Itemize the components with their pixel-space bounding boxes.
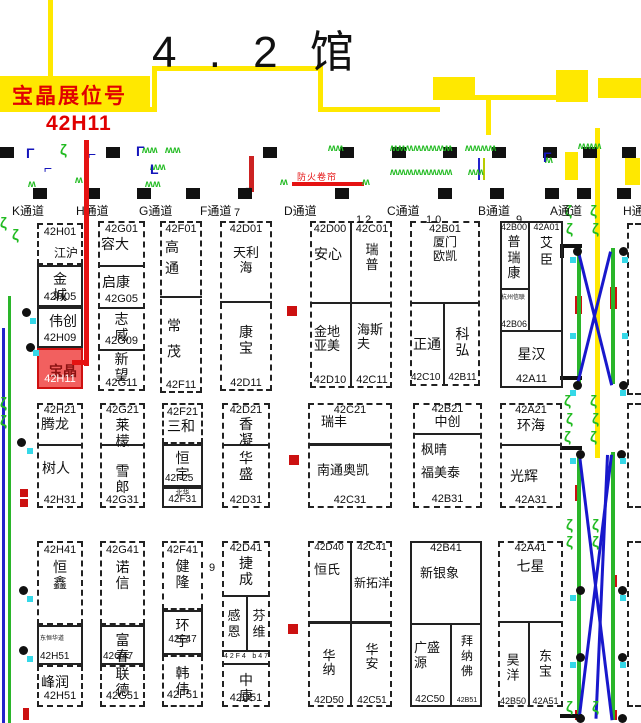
plant-icon: ʍʍ bbox=[468, 168, 484, 178]
plant-icon: ʍʍʍʍʍʍʍʍ bbox=[390, 144, 452, 154]
aisle-label-H: H通道 bbox=[76, 202, 109, 219]
booth-number: 42A11 bbox=[516, 373, 547, 386]
plant-icon: ʍ bbox=[28, 180, 36, 190]
booth-number: 42B11 bbox=[448, 372, 476, 384]
plant-icon: ζ bbox=[590, 430, 597, 445]
booth-name: 华纳 bbox=[319, 649, 340, 679]
booth-name: 东 宝 bbox=[539, 648, 552, 679]
hall-outline bbox=[625, 158, 640, 185]
door-swing-icon: Γ bbox=[26, 146, 34, 160]
booth-42D40: 42D40恒氏 bbox=[308, 541, 350, 621]
booth-number: 42F25 bbox=[165, 473, 193, 485]
utility-square-icon bbox=[33, 350, 39, 356]
door-swing-icon: Γ bbox=[543, 150, 551, 164]
booth-42D50: 华纳42D50 bbox=[308, 624, 350, 707]
booth-name: 芬 维 bbox=[252, 607, 265, 640]
booth-42D11: 康宝42D11 bbox=[220, 301, 272, 391]
utility-square-icon bbox=[27, 596, 33, 602]
booth-number: 42G47 bbox=[103, 651, 133, 663]
marker bbox=[23, 708, 29, 720]
booth-42H01: 42H01江沪 bbox=[37, 223, 83, 265]
booth-name: 江沪 bbox=[54, 247, 78, 261]
hall-outline bbox=[48, 0, 53, 78]
booth-name: 三和 bbox=[167, 418, 195, 434]
marker bbox=[20, 489, 28, 497]
booth-42H21: 42H21腾龙 bbox=[37, 403, 83, 444]
booth-42F41: 42F41健隆 bbox=[162, 541, 203, 610]
booth-number: 42D50 bbox=[314, 695, 343, 707]
booth-number: 42F47 bbox=[168, 634, 196, 646]
booth-number: 42A51 bbox=[532, 696, 558, 706]
column-dot-icon bbox=[573, 381, 582, 390]
booth-number: 42A21 bbox=[515, 404, 547, 417]
booth-name: 星汉 bbox=[518, 346, 546, 362]
marker bbox=[289, 455, 299, 465]
booth-number: 42D21 bbox=[230, 404, 262, 417]
plant-icon: ζ bbox=[590, 394, 597, 409]
pillar-icon bbox=[186, 188, 200, 199]
booth-42C50: 广盛 源42C50 bbox=[410, 625, 450, 707]
booth-name: 枫晴 bbox=[421, 443, 447, 458]
plant-icon: ζ bbox=[592, 700, 599, 715]
booth-42D41: 42D41捷成 bbox=[222, 541, 270, 595]
plant-icon: ζ bbox=[592, 222, 599, 237]
booth-42F01: 42F01高 通 bbox=[160, 221, 202, 296]
partial-booth bbox=[627, 541, 641, 707]
hall-outline bbox=[433, 77, 475, 100]
booth-42H41: 42H41恒鑫 bbox=[37, 541, 83, 625]
booth-number: 42G01 bbox=[105, 223, 138, 236]
utility-square-icon bbox=[30, 318, 36, 324]
booth-name: 捷成 bbox=[234, 555, 258, 587]
booth-name: 昊 洋 bbox=[506, 652, 519, 683]
booth-42B31: 枫晴福美泰42B31 bbox=[413, 435, 482, 508]
column-dot-icon bbox=[573, 247, 582, 256]
column-dot-icon bbox=[619, 381, 628, 390]
booth-name: 伟创 bbox=[49, 313, 77, 329]
booth-name: 艾 臣 bbox=[540, 235, 553, 269]
booth-name: 福美泰 bbox=[421, 466, 460, 481]
booth-name: 新银象 bbox=[420, 567, 459, 582]
booth-number: 42C50 bbox=[415, 694, 444, 706]
booth-42D31: 华盛42D31 bbox=[222, 444, 270, 508]
plant-icon: ζ bbox=[566, 700, 573, 715]
booth-name: 华安 bbox=[362, 643, 382, 673]
pillar-icon bbox=[545, 188, 559, 199]
plant-icon: ζ bbox=[566, 518, 573, 533]
booth-tiny-42F: 4 2 F 4b 4 7 bbox=[222, 650, 270, 663]
booth-number: 42D31 bbox=[230, 494, 262, 507]
utility-square-icon bbox=[570, 257, 576, 263]
booth-name: 普 瑞 康 bbox=[507, 234, 520, 281]
plant-icon: ζ bbox=[564, 394, 571, 409]
pillar-icon bbox=[617, 188, 631, 199]
utility-square-icon bbox=[620, 390, 626, 396]
door-swing-icon: Γ bbox=[136, 144, 144, 158]
booth-42B01: 42B01厦门欧凯 bbox=[410, 221, 480, 302]
hall-outline bbox=[556, 70, 588, 102]
banner-booth-number: 42H11 bbox=[46, 112, 112, 136]
booth-number: 42C41 bbox=[357, 542, 386, 554]
plant-icon: ʍ bbox=[280, 178, 288, 188]
column-dot-icon bbox=[17, 438, 26, 447]
booth-name: 高 通 bbox=[165, 237, 179, 279]
aisle-number: 9 bbox=[516, 214, 522, 226]
booth-42G31: 雪郎42G31 bbox=[100, 444, 145, 508]
booth-number: 42D10 bbox=[314, 374, 346, 387]
utility-square-icon bbox=[620, 595, 626, 601]
booth-number: 42H21 bbox=[44, 404, 76, 417]
booth-42D51: 中康42D51 bbox=[222, 663, 270, 707]
booth-42F51: 韩伟42F51 bbox=[162, 655, 203, 707]
plant-icon: ζ bbox=[592, 518, 599, 533]
plant-icon: ζ bbox=[0, 414, 7, 429]
booth-name: 广盛 源 bbox=[414, 641, 440, 671]
booth-number: 42F11 bbox=[166, 379, 196, 392]
booth-number: 42B50 bbox=[500, 696, 526, 706]
pillar-icon bbox=[622, 147, 636, 158]
marker bbox=[288, 624, 298, 634]
door-swing-icon: L bbox=[150, 162, 159, 176]
column-dot-icon bbox=[576, 586, 585, 595]
booth-number: 42G41 bbox=[106, 544, 139, 557]
booth-42H51: 峰润42H51 bbox=[37, 665, 83, 707]
booth-number: 42D01 bbox=[230, 223, 262, 236]
aisle-label-B: B通道 bbox=[478, 202, 510, 219]
plant-icon: ʍʍ bbox=[165, 146, 181, 156]
partial-booth bbox=[627, 223, 641, 395]
plant-icon: ζ bbox=[590, 204, 597, 219]
booth-number: 42H11 bbox=[44, 373, 76, 386]
aisle-number: 1 0 bbox=[426, 214, 441, 226]
escalator-rail bbox=[611, 248, 615, 384]
column-dot-icon bbox=[619, 247, 628, 256]
blue-line bbox=[2, 328, 5, 723]
booth-number: 42H41 bbox=[44, 544, 76, 557]
utility-square-icon bbox=[570, 458, 576, 464]
booth-number: 42D40 bbox=[314, 542, 343, 554]
plant-icon: ʍ bbox=[75, 176, 83, 186]
column-dot-icon bbox=[618, 586, 627, 595]
column-dot-icon bbox=[576, 714, 585, 723]
plant-icon: ʍʍʍ bbox=[578, 142, 601, 152]
plant-icon: ʍʍ bbox=[328, 144, 344, 154]
pillar-icon bbox=[335, 188, 349, 199]
hall-outline bbox=[598, 78, 641, 98]
booth-name: 峰润 bbox=[41, 674, 69, 690]
fire-shutter-label: 防火卷帘 bbox=[297, 170, 337, 183]
column-dot-icon bbox=[618, 714, 627, 723]
booth-name: 容大 bbox=[101, 236, 129, 252]
booth-number: 42G31 bbox=[106, 494, 139, 507]
door-swing-icon: ⌐ bbox=[44, 161, 52, 175]
booth-sublabel: 4 2 F 4 bbox=[224, 652, 246, 660]
booth-number: 42B06 bbox=[501, 319, 527, 329]
booth-42H51-a: 东恒华道42H51 bbox=[37, 625, 83, 665]
aisle-label-H: H通 bbox=[623, 202, 641, 219]
booth-sublabel: 东恒华道 bbox=[40, 636, 64, 643]
booth-42A41: 42A41七星 bbox=[498, 541, 563, 621]
booth-42G51: 联德42G51 bbox=[100, 665, 145, 707]
booth-42G21: 42G21莱檬 bbox=[100, 403, 145, 444]
booth-42D21: 42D21香凝 bbox=[222, 403, 270, 444]
booth-number: 42G11 bbox=[105, 377, 137, 390]
booth-number: 42B00 bbox=[501, 222, 527, 232]
utility-square-icon bbox=[622, 257, 628, 263]
booth-number: 42F01 bbox=[165, 223, 196, 236]
booth-name: 启康 bbox=[102, 274, 130, 290]
booth-42B00: 42B00普 瑞 康 bbox=[500, 221, 528, 287]
booth-42H11: 宝晶42H11 bbox=[37, 348, 83, 389]
booth-42B21: 42B21中创 bbox=[413, 403, 482, 433]
booth-42G47: 富春42G47 bbox=[100, 625, 145, 665]
booth-42D00: 42D00安心 bbox=[310, 221, 350, 302]
booth-name: 安心 bbox=[314, 245, 342, 261]
booth-42H09: 伟创42H09 bbox=[37, 307, 83, 348]
booth-42C51: 华安42C51 bbox=[352, 624, 392, 707]
booth-name: 树人 bbox=[42, 460, 70, 476]
booth-42C01: 42C01瑞普 bbox=[352, 221, 392, 302]
booth-name: 科弘 bbox=[454, 326, 472, 358]
plant-icon: ʍʍ bbox=[145, 180, 161, 190]
pillar-icon bbox=[438, 188, 452, 199]
partial-booth bbox=[627, 403, 641, 508]
aisle-label-D: D通道 bbox=[284, 202, 317, 219]
column-dot-icon bbox=[576, 653, 585, 662]
plant-icon: ʍ bbox=[362, 178, 370, 188]
booth-42D10: 金地 亚美42D10 bbox=[310, 303, 350, 388]
booth-sublabel: 杭州信联 bbox=[501, 295, 525, 302]
booth-number: 42G21 bbox=[106, 404, 139, 417]
utility-square-icon bbox=[27, 448, 33, 454]
booth-number: 42H01 bbox=[44, 226, 76, 239]
aisle-number: 9 bbox=[209, 562, 215, 574]
utility-square-icon bbox=[570, 595, 576, 601]
booth-sublabel: 42B51 bbox=[457, 697, 477, 705]
booth-name: 瑞普 bbox=[362, 243, 382, 273]
plant-icon: ζ bbox=[566, 535, 573, 550]
floor-plan: 4 . 2 馆 宝晶展位号 42H11 防火卷帘 42H01江沪金城42H05伟… bbox=[0, 0, 641, 723]
booth-name: 雪郎 bbox=[111, 463, 134, 495]
booth-number: 42A01 bbox=[533, 222, 559, 232]
aisle-label-C: C通道 bbox=[387, 202, 420, 219]
booth-number: 42B31 bbox=[432, 493, 464, 506]
column-dot-icon bbox=[22, 308, 31, 317]
plant-icon: ʍʍʍʍʍʍʍʍ bbox=[390, 168, 452, 178]
booth-number: 42G05 bbox=[105, 293, 138, 306]
booth-number: 42C31 bbox=[334, 494, 366, 507]
booth-42H31: 树人42H31 bbox=[37, 444, 83, 508]
booth-number: 42H31 bbox=[44, 494, 76, 507]
booth-42C41: 42C41新拓洋 bbox=[352, 541, 392, 621]
plant-icon: ζ bbox=[60, 143, 67, 158]
column-dot-icon bbox=[618, 653, 627, 662]
booth-name: 光辉 bbox=[510, 468, 538, 484]
booth-name: 天利海 bbox=[233, 246, 259, 276]
aisle-label-K: K通道 bbox=[12, 202, 44, 219]
booth-name: 环海 bbox=[517, 417, 545, 433]
booth-name: 拜 纳 佛 bbox=[461, 634, 473, 679]
booth-name: 七星 bbox=[517, 558, 545, 574]
booth-42F21: 42F21三和 bbox=[162, 403, 203, 444]
utility-square-icon bbox=[27, 656, 33, 662]
booth-number: 42H51 bbox=[44, 690, 76, 703]
booth-name: 新拓洋 bbox=[354, 577, 390, 591]
column-dot-icon bbox=[19, 646, 28, 655]
booth-42C21: 42C21瑞丰 bbox=[308, 403, 392, 443]
plant-icon: ζ bbox=[566, 222, 573, 237]
utility-square-icon bbox=[570, 333, 576, 339]
booth-name: 中创 bbox=[434, 415, 460, 430]
booth-number: 42H09 bbox=[44, 332, 76, 345]
booth-number: 42F21 bbox=[167, 406, 198, 419]
booth-number: 42C11 bbox=[356, 374, 388, 387]
pointer-line bbox=[72, 360, 86, 365]
booth-42C10: 正通42C10 bbox=[410, 304, 443, 384]
booth-42B11: 科弘42B11 bbox=[445, 304, 480, 384]
utility-square-icon bbox=[622, 333, 628, 339]
escalator-rail bbox=[611, 452, 615, 720]
plant-icon: ζ bbox=[566, 412, 573, 427]
plant-icon: ζ bbox=[12, 228, 19, 243]
booth-name: 诺信 bbox=[112, 559, 133, 591]
marker bbox=[287, 306, 297, 316]
booth-name: 感 恩 bbox=[227, 607, 240, 640]
booth-name: 康宝 bbox=[233, 324, 259, 356]
booth-number: 42C51 bbox=[357, 695, 386, 707]
pillar-icon bbox=[577, 188, 591, 199]
booth-42A11: 星汉42A11 bbox=[500, 332, 563, 388]
pointer-line bbox=[84, 140, 89, 366]
booth-42F31: 北华42F31 bbox=[162, 487, 203, 508]
booth-name: 南通奥凯 bbox=[317, 464, 369, 479]
aisle-label-G: G通道 bbox=[139, 202, 172, 219]
booth-42H05: 金城42H05 bbox=[37, 265, 83, 307]
utility-square-icon bbox=[570, 662, 576, 668]
marker bbox=[20, 499, 28, 507]
booth-number: 42D51 bbox=[230, 692, 262, 705]
booth-42G11: 新望42G11 bbox=[98, 349, 145, 391]
door-swing-icon: ⌐ bbox=[88, 147, 96, 161]
booth-42F11: 常 茂42F11 bbox=[160, 296, 202, 393]
booth-name: 健隆 bbox=[173, 557, 192, 589]
aisle-number: 1 2 bbox=[356, 214, 371, 226]
booth-name: 瑞丰 bbox=[321, 415, 347, 430]
booth-42A31: 光辉42A31 bbox=[500, 444, 562, 508]
aisle-label-F: F通道 bbox=[200, 202, 231, 219]
booth-42D01: 42D01天利海 bbox=[220, 221, 272, 301]
booth-number: 42A41 bbox=[515, 542, 547, 555]
booth-name: 恒氏 bbox=[314, 563, 340, 578]
booth-42B41: 42B41新银象 bbox=[410, 541, 482, 623]
booth-number: 42D11 bbox=[230, 377, 262, 390]
hall-outline bbox=[565, 152, 578, 180]
booth-ganen: 感 恩 bbox=[222, 597, 246, 650]
booth-42A21: 42A21环海 bbox=[500, 403, 562, 444]
booth-number: 42D41 bbox=[230, 542, 262, 555]
booth-name: 厦门欧凯 bbox=[428, 236, 463, 264]
booth-42G05: 启康42G05 bbox=[98, 265, 145, 307]
booth-fenwei: 芬 维 bbox=[248, 597, 270, 650]
booth-number: 42H51 bbox=[40, 651, 69, 663]
hall-title: 4 . 2 馆 bbox=[152, 16, 364, 80]
plant-icon: ζ bbox=[592, 412, 599, 427]
hall-outline bbox=[486, 100, 491, 135]
pillar-icon bbox=[0, 147, 14, 158]
plant-icon: ζ bbox=[564, 430, 571, 445]
booth-42B51: 拜 纳 佛42B51 bbox=[452, 625, 482, 707]
utility-square-icon bbox=[620, 458, 626, 464]
pillar-icon bbox=[106, 147, 120, 158]
column-dot-icon bbox=[576, 450, 585, 459]
green-line bbox=[8, 296, 11, 723]
booth-42B06: 杭州信联42B06 bbox=[500, 290, 528, 330]
booth-name: 正通 bbox=[413, 336, 441, 352]
booth-number: 42G51 bbox=[106, 690, 139, 703]
booth-name: 腾龙 bbox=[41, 416, 69, 432]
booth-42B50: 昊 洋42B50 bbox=[498, 624, 528, 707]
aisle-label-A: A通道 bbox=[550, 202, 582, 219]
booth-42F25: 恒宇42F25 bbox=[162, 444, 203, 487]
utility-square-icon bbox=[620, 662, 626, 668]
booth-number: 42D00 bbox=[314, 223, 346, 236]
booth-name: 恒鑫 bbox=[50, 559, 71, 591]
plant-icon: ζ bbox=[0, 396, 7, 411]
booth-name: 海斯 夫 bbox=[357, 323, 383, 353]
booth-42A01: 42A01艾 臣 bbox=[530, 221, 563, 329]
booth-number: 42B41 bbox=[430, 542, 462, 555]
booth-42G41: 42G41诺信 bbox=[100, 541, 145, 625]
booth-number: 42H05 bbox=[44, 291, 76, 304]
booth-sublabel: b 4 7 bbox=[252, 652, 268, 660]
booth-42C11: 海斯 夫42C11 bbox=[352, 303, 392, 388]
booth-42A51: 东 宝42A51 bbox=[528, 624, 563, 707]
booth-number: 42F41 bbox=[167, 544, 198, 557]
booth-42F47: 环宇42F47 bbox=[162, 610, 203, 655]
booth-number: 42G09 bbox=[105, 335, 138, 348]
pillar-icon bbox=[490, 188, 504, 199]
booth-42G09: 志威42G09 bbox=[98, 307, 145, 349]
booth-number: 42F31 bbox=[168, 494, 196, 506]
booth-42G01: 42G01容大 bbox=[98, 221, 145, 265]
booth-name: 金地 亚美 bbox=[314, 325, 340, 355]
plant-icon: ζ bbox=[0, 216, 7, 231]
booth-name: 常 茂 bbox=[167, 312, 181, 365]
booth-number: 42C10 bbox=[411, 372, 440, 384]
banner-exhibitor-label: 宝晶展位号 bbox=[12, 80, 127, 110]
booth-number: 42F51 bbox=[167, 689, 198, 702]
aisle-number: 7 bbox=[234, 207, 240, 219]
booth-number: 42A31 bbox=[515, 494, 547, 507]
plant-icon: ʍʍʍʍ bbox=[465, 144, 496, 154]
column-dot-icon bbox=[19, 586, 28, 595]
booth-name: 华盛 bbox=[234, 450, 258, 482]
booth-42C31: 南通奥凯42C31 bbox=[308, 446, 392, 508]
pillar-icon bbox=[263, 147, 277, 158]
hall-outline bbox=[318, 107, 440, 112]
plant-icon: ζ bbox=[592, 535, 599, 550]
arrow-down-icon: ▼ bbox=[244, 186, 253, 195]
